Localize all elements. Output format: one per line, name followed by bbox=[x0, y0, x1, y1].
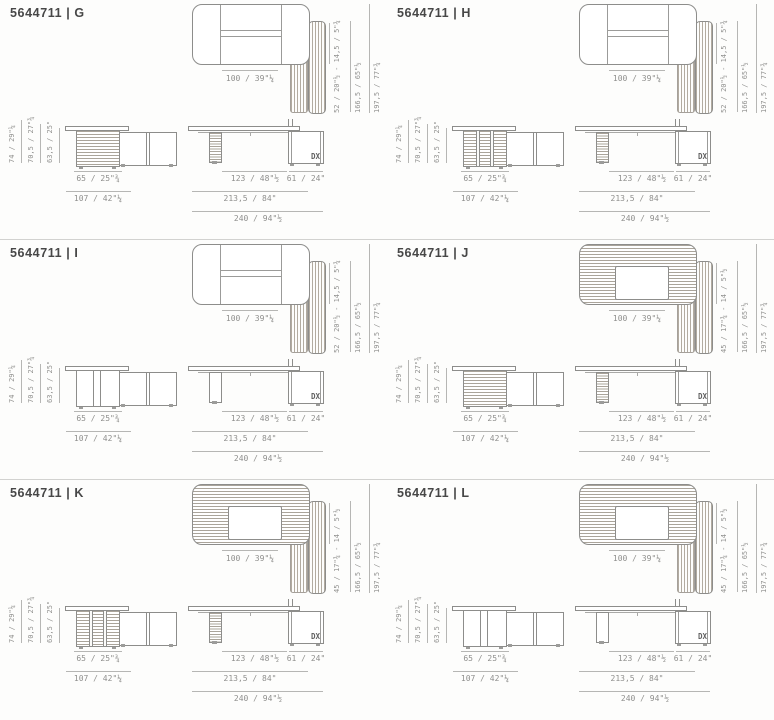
side-unit-foot bbox=[169, 644, 173, 647]
desk-top-slab bbox=[188, 606, 300, 611]
dimension-line bbox=[192, 691, 323, 692]
dx-side-label: DX bbox=[311, 152, 320, 161]
desk-leg-panel bbox=[596, 372, 609, 403]
dim-label-cabinet-height-2: 70,5 / 27"¾ bbox=[414, 357, 423, 403]
desktop-surface bbox=[192, 4, 310, 65]
dim-label-pedestal-width: 61 / 24" bbox=[663, 174, 723, 183]
dim-label-side-depth: 45 / 17"¾ - 14 / 5"½ bbox=[333, 509, 342, 593]
desk-leg-panel bbox=[596, 132, 609, 163]
pedestal-unit: DX bbox=[675, 131, 711, 164]
dimension-line bbox=[40, 364, 41, 403]
desktop-surface bbox=[579, 484, 697, 545]
dimension-line bbox=[716, 503, 717, 544]
center-support bbox=[250, 612, 251, 616]
side-unit-foot bbox=[121, 164, 125, 167]
return-panel-strip bbox=[290, 538, 308, 593]
dim-label-desk-width: 213,5 / 84" bbox=[587, 194, 687, 203]
dim-label-cabinet-width: 65 / 25"¾ bbox=[435, 174, 535, 183]
dimension-line bbox=[716, 263, 717, 304]
spec-sheet: 5644711 | G 100 / 39"¼ 52 / 20"½ - 14,5 … bbox=[0, 0, 774, 720]
pedestal-unit: DX bbox=[675, 371, 711, 404]
pedestal-inner-edge bbox=[678, 372, 679, 403]
dim-label-top-width: 100 / 39"¼ bbox=[582, 74, 692, 83]
spec-panel-k: 5644711 | K 100 / 39"¼ 45 / 17"¾ - 14 / … bbox=[0, 480, 387, 720]
dim-label-cabinet-width: 65 / 25"¾ bbox=[435, 654, 535, 663]
dimension-line bbox=[446, 128, 447, 163]
desktop-surface bbox=[579, 244, 697, 305]
dimension-line bbox=[737, 261, 738, 352]
dx-side-label: DX bbox=[698, 632, 707, 641]
pedestal-unit: DX bbox=[288, 611, 324, 644]
side-unit-foot bbox=[556, 644, 560, 647]
dimension-line bbox=[427, 124, 428, 163]
desk-leg-foot bbox=[599, 161, 604, 164]
side-unit-foot bbox=[556, 164, 560, 167]
dimension-line bbox=[676, 171, 710, 172]
dimension-line bbox=[579, 211, 710, 212]
dim-label-cabinet-height-2: 70,5 / 27"¾ bbox=[414, 117, 423, 163]
pedestal-inner-edge bbox=[320, 132, 321, 163]
dim-label-desk-total-width: 240 / 94"½ bbox=[595, 454, 695, 463]
dim-label-pedestal-width: 61 / 24" bbox=[663, 414, 723, 423]
desk-top-slab bbox=[188, 366, 300, 371]
dim-label-cabinet-height-3: 63,5 / 25" bbox=[433, 361, 442, 403]
dimension-line bbox=[579, 191, 695, 192]
dim-label-total-length: 197,5 / 77"¾ bbox=[760, 302, 769, 353]
cabinet-handle-groove bbox=[480, 611, 488, 646]
side-unit-foot bbox=[169, 164, 173, 167]
return-panel-strip bbox=[290, 298, 308, 353]
dim-label-cabinet-total-width: 107 / 42"¼ bbox=[435, 194, 535, 203]
pedestal-inner-edge bbox=[678, 612, 679, 643]
dim-label-top-width: 100 / 39"¼ bbox=[582, 314, 692, 323]
dim-label-desk-total-width: 240 / 94"½ bbox=[208, 694, 308, 703]
desk-leg-panel bbox=[209, 132, 222, 163]
center-support bbox=[637, 612, 638, 616]
dim-label-top-width: 100 / 39"¼ bbox=[195, 74, 305, 83]
dim-label-top-width: 100 / 39"¼ bbox=[195, 554, 305, 563]
back-panel-edge bbox=[288, 359, 293, 366]
dim-label-cabinet-height-1: 74 / 29"¼ bbox=[395, 365, 404, 403]
cabinet-handle-groove bbox=[93, 371, 101, 406]
back-panel-edge bbox=[288, 119, 293, 126]
desktop-surface bbox=[192, 484, 310, 545]
dimension-line bbox=[40, 604, 41, 643]
dim-label-top-width: 100 / 39"¼ bbox=[582, 554, 692, 563]
desk-top-slab bbox=[188, 126, 300, 131]
dim-label-top-width: 100 / 39"¼ bbox=[195, 314, 305, 323]
desktop-divider-line bbox=[281, 5, 282, 64]
dim-label-pedestal-width: 61 / 24" bbox=[276, 174, 336, 183]
cabinet-door-seam bbox=[476, 131, 480, 166]
dim-label-cabinet-height-3: 63,5 / 25" bbox=[46, 121, 55, 163]
panel-title: 5644711 | H bbox=[397, 6, 471, 20]
desktop-inset-pad bbox=[615, 266, 669, 300]
desktop-inset-pad bbox=[615, 506, 669, 540]
side-unit-foot bbox=[556, 404, 560, 407]
dim-label-pedestal-width: 61 / 24" bbox=[276, 414, 336, 423]
side-unit-foot bbox=[508, 404, 512, 407]
dim-label-desk-width: 213,5 / 84" bbox=[587, 434, 687, 443]
desktop-groove bbox=[607, 30, 668, 37]
dimension-line bbox=[676, 651, 710, 652]
dimension-line bbox=[461, 171, 509, 172]
spec-panel-g: 5644711 | G 100 / 39"¼ 52 / 20"½ - 14,5 … bbox=[0, 0, 387, 240]
pedestal-inner-edge bbox=[320, 612, 321, 643]
desk-leg-panel bbox=[209, 372, 222, 403]
cabinet-side-unit bbox=[118, 132, 177, 166]
dimension-line bbox=[369, 4, 370, 113]
cabinet-top-slab bbox=[65, 606, 129, 611]
dimension-line bbox=[609, 550, 665, 551]
dimension-line bbox=[408, 120, 409, 163]
side-panel-top-view bbox=[695, 261, 713, 354]
desk-leg-panel bbox=[209, 612, 222, 643]
dimension-line bbox=[350, 21, 351, 112]
pedestal-inner-edge bbox=[291, 612, 292, 643]
dim-label-cabinet-width: 65 / 25"¾ bbox=[435, 414, 535, 423]
dim-label-side-length: 166,5 / 65"½ bbox=[741, 62, 750, 113]
cabinet-side-unit bbox=[505, 612, 564, 646]
dimension-line bbox=[446, 368, 447, 403]
dimension-line bbox=[427, 364, 428, 403]
spec-panel-i: 5644711 | I 100 / 39"¼ 52 / 20"½ - 14,5 … bbox=[0, 240, 387, 480]
dimension-line bbox=[737, 501, 738, 592]
panel-title: 5644711 | L bbox=[397, 486, 470, 500]
desk-leg-foot bbox=[212, 641, 217, 644]
dim-label-side-length: 166,5 / 65"½ bbox=[741, 542, 750, 593]
dim-label-side-depth: 52 / 20"½ - 14,5 / 5"¾ bbox=[720, 20, 729, 113]
pedestal-inner-edge bbox=[291, 132, 292, 163]
dimension-line bbox=[59, 128, 60, 163]
dimension-line bbox=[369, 244, 370, 353]
dimension-line bbox=[289, 651, 323, 652]
cabinet-top-slab bbox=[65, 126, 129, 131]
dim-label-desk-total-width: 240 / 94"½ bbox=[208, 454, 308, 463]
return-panel-strip bbox=[290, 58, 308, 113]
side-panel-top-view bbox=[308, 21, 326, 114]
dimension-line bbox=[74, 171, 122, 172]
dimension-line bbox=[453, 191, 518, 192]
dim-label-cabinet-height-2: 70,5 / 27"¾ bbox=[27, 597, 36, 643]
panel-grid: 5644711 | G 100 / 39"¼ 52 / 20"½ - 14,5 … bbox=[0, 0, 774, 720]
dimension-line bbox=[427, 604, 428, 643]
dim-label-desk-total-width: 240 / 94"½ bbox=[595, 694, 695, 703]
dimension-line bbox=[350, 261, 351, 352]
side-unit-foot bbox=[121, 404, 125, 407]
dimension-line bbox=[21, 120, 22, 163]
cabinet-drawer-unit bbox=[76, 370, 120, 407]
side-unit-foot bbox=[121, 644, 125, 647]
desk-leg-foot bbox=[212, 401, 217, 404]
center-support bbox=[250, 372, 251, 376]
dimension-line bbox=[21, 360, 22, 403]
side-panel-top-view bbox=[695, 501, 713, 594]
cabinet-drawer-unit bbox=[76, 130, 120, 167]
dimension-line bbox=[329, 23, 330, 64]
desk-top-slab bbox=[575, 606, 687, 611]
cabinet-drawer-unit bbox=[463, 370, 507, 407]
desk-leg-foot bbox=[599, 401, 604, 404]
dimension-line bbox=[446, 608, 447, 643]
dimension-line bbox=[609, 310, 665, 311]
dim-label-total-length: 197,5 / 77"¾ bbox=[373, 302, 382, 353]
desk-top-slab bbox=[575, 366, 687, 371]
desktop-groove bbox=[220, 30, 281, 37]
pedestal-inner-edge bbox=[707, 372, 708, 403]
dimension-line bbox=[289, 411, 323, 412]
panel-title: 5644711 | I bbox=[10, 246, 79, 260]
cabinet-side-unit bbox=[118, 372, 177, 406]
dim-label-cabinet-height-1: 74 / 29"¼ bbox=[8, 605, 17, 643]
dimension-line bbox=[222, 550, 278, 551]
side-unit-door-seam bbox=[146, 133, 150, 165]
dim-label-cabinet-total-width: 107 / 42"¼ bbox=[48, 194, 148, 203]
dx-side-label: DX bbox=[311, 632, 320, 641]
spec-panel-h: 5644711 | H 100 / 39"¼ 52 / 20"½ - 14,5 … bbox=[387, 0, 774, 240]
dimension-line bbox=[408, 600, 409, 643]
dimension-line bbox=[609, 70, 665, 71]
dimension-line bbox=[350, 501, 351, 592]
dimension-line bbox=[453, 431, 518, 432]
side-panel-top-view bbox=[695, 21, 713, 114]
pedestal-inner-edge bbox=[678, 132, 679, 163]
pedestal-inner-edge bbox=[320, 372, 321, 403]
dimension-line bbox=[222, 411, 287, 412]
dimension-line bbox=[222, 651, 287, 652]
dx-side-label: DX bbox=[311, 392, 320, 401]
dimension-line bbox=[222, 310, 278, 311]
dim-label-cabinet-width: 65 / 25"¾ bbox=[48, 654, 148, 663]
desk-top-slab bbox=[575, 126, 687, 131]
dimension-line bbox=[59, 368, 60, 403]
dim-label-desk-width: 213,5 / 84" bbox=[200, 434, 300, 443]
back-panel-edge bbox=[288, 599, 293, 606]
dim-label-side-depth: 52 / 20"½ - 14,5 / 5"¾ bbox=[333, 20, 342, 113]
cabinet-top-slab bbox=[452, 366, 516, 371]
dim-label-side-length: 166,5 / 65"½ bbox=[741, 302, 750, 353]
dimension-line bbox=[756, 4, 757, 113]
desktop-divider-line bbox=[668, 5, 669, 64]
dim-label-cabinet-height-1: 74 / 29"¼ bbox=[8, 125, 17, 163]
dim-label-cabinet-height-2: 70,5 / 27"¾ bbox=[27, 117, 36, 163]
dimension-line bbox=[59, 608, 60, 643]
dim-label-cabinet-height-3: 63,5 / 25" bbox=[46, 361, 55, 403]
dim-label-total-length: 197,5 / 77"¾ bbox=[760, 62, 769, 113]
dimension-line bbox=[579, 451, 710, 452]
back-panel-edge bbox=[675, 599, 680, 606]
side-unit-door-seam bbox=[533, 133, 537, 165]
dimension-line bbox=[369, 484, 370, 593]
dimension-line bbox=[192, 671, 308, 672]
dimension-line bbox=[329, 263, 330, 304]
pedestal-inner-edge bbox=[291, 372, 292, 403]
dim-label-side-depth: 52 / 20"½ - 14,5 / 5"¾ bbox=[333, 260, 342, 353]
side-unit-door-seam bbox=[146, 373, 150, 405]
cabinet-drawer-unit bbox=[76, 610, 120, 647]
dim-label-cabinet-height-1: 74 / 29"¼ bbox=[8, 365, 17, 403]
dim-label-desk-total-width: 240 / 94"½ bbox=[595, 214, 695, 223]
dim-label-cabinet-total-width: 107 / 42"¼ bbox=[48, 674, 148, 683]
dim-label-side-depth: 45 / 17"¾ - 14 / 5"½ bbox=[720, 269, 729, 353]
dimension-line bbox=[289, 171, 323, 172]
panel-title: 5644711 | G bbox=[10, 6, 85, 20]
dim-label-cabinet-height-2: 70,5 / 27"¾ bbox=[27, 357, 36, 403]
pedestal-unit: DX bbox=[288, 131, 324, 164]
dimension-line bbox=[66, 671, 131, 672]
back-panel-edge bbox=[675, 119, 680, 126]
dim-label-cabinet-height-1: 74 / 29"¼ bbox=[395, 605, 404, 643]
cabinet-drawer-unit bbox=[463, 130, 507, 167]
dim-label-cabinet-height-3: 63,5 / 25" bbox=[433, 601, 442, 643]
desktop-divider-line bbox=[281, 245, 282, 304]
dimension-line bbox=[192, 211, 323, 212]
pedestal-inner-edge bbox=[707, 132, 708, 163]
dim-label-total-length: 197,5 / 77"¾ bbox=[373, 62, 382, 113]
dimension-line bbox=[192, 431, 308, 432]
cabinet-top-slab bbox=[452, 126, 516, 131]
center-support bbox=[637, 132, 638, 136]
dim-label-side-length: 166,5 / 65"½ bbox=[354, 542, 363, 593]
dimension-line bbox=[579, 671, 695, 672]
dim-label-desk-total-width: 240 / 94"½ bbox=[208, 214, 308, 223]
side-unit-foot bbox=[508, 164, 512, 167]
side-panel-top-view bbox=[308, 261, 326, 354]
dim-label-cabinet-total-width: 107 / 42"¼ bbox=[48, 434, 148, 443]
pedestal-inner-edge bbox=[707, 612, 708, 643]
dimension-line bbox=[716, 23, 717, 64]
cabinet-top-slab bbox=[65, 366, 129, 371]
side-panel-top-view bbox=[308, 501, 326, 594]
dimension-line bbox=[609, 171, 674, 172]
desk-leg-panel bbox=[596, 612, 609, 643]
return-panel-strip bbox=[677, 298, 695, 353]
dimension-line bbox=[579, 431, 695, 432]
desktop-groove bbox=[220, 270, 281, 277]
dimension-line bbox=[222, 171, 287, 172]
dimension-line bbox=[66, 431, 131, 432]
back-panel-edge bbox=[675, 359, 680, 366]
dim-label-pedestal-width: 61 / 24" bbox=[276, 654, 336, 663]
dim-label-side-length: 166,5 / 65"½ bbox=[354, 62, 363, 113]
dimension-line bbox=[453, 671, 518, 672]
dim-label-desk-width: 213,5 / 84" bbox=[587, 674, 687, 683]
dim-label-pedestal-width: 61 / 24" bbox=[663, 654, 723, 663]
dx-side-label: DX bbox=[698, 392, 707, 401]
desk-leg-foot bbox=[212, 161, 217, 164]
dimension-line bbox=[74, 651, 122, 652]
dimension-line bbox=[329, 503, 330, 544]
pedestal-unit: DX bbox=[288, 371, 324, 404]
dimension-line bbox=[756, 484, 757, 593]
dimension-line bbox=[676, 411, 710, 412]
dimension-line bbox=[461, 651, 509, 652]
cabinet-door-seam bbox=[490, 131, 494, 166]
return-panel-strip bbox=[677, 538, 695, 593]
dimension-line bbox=[461, 411, 509, 412]
center-support bbox=[250, 132, 251, 136]
dim-label-desk-width: 213,5 / 84" bbox=[200, 674, 300, 683]
dimension-line bbox=[192, 451, 323, 452]
pedestal-unit: DX bbox=[675, 611, 711, 644]
dim-label-cabinet-height-2: 70,5 / 27"¾ bbox=[414, 597, 423, 643]
dim-label-cabinet-height-3: 63,5 / 25" bbox=[46, 601, 55, 643]
cabinet-side-unit bbox=[505, 372, 564, 406]
dimension-line bbox=[609, 411, 674, 412]
return-panel-strip bbox=[677, 58, 695, 113]
cabinet-drawer-unit bbox=[463, 610, 507, 647]
desk-leg-foot bbox=[599, 641, 604, 644]
side-unit-foot bbox=[169, 404, 173, 407]
dx-side-label: DX bbox=[698, 152, 707, 161]
dimension-line bbox=[192, 191, 308, 192]
cabinet-side-unit bbox=[505, 132, 564, 166]
spec-panel-j: 5644711 | J 100 / 39"¼ 45 / 17"¾ - 14 / … bbox=[387, 240, 774, 480]
spec-panel-l: 5644711 | L 100 / 39"¼ 45 / 17"¾ - 14 / … bbox=[387, 480, 774, 720]
dimension-line bbox=[609, 651, 674, 652]
side-unit-door-seam bbox=[533, 373, 537, 405]
desktop-inset-pad bbox=[228, 506, 282, 540]
dim-label-side-depth: 45 / 17"¾ - 14 / 5"½ bbox=[720, 509, 729, 593]
dimension-line bbox=[40, 124, 41, 163]
dim-label-desk-width: 213,5 / 84" bbox=[200, 194, 300, 203]
dimension-line bbox=[579, 691, 710, 692]
dimension-line bbox=[66, 191, 131, 192]
dimension-line bbox=[222, 70, 278, 71]
dim-label-cabinet-width: 65 / 25"¾ bbox=[48, 414, 148, 423]
cabinet-top-slab bbox=[452, 606, 516, 611]
dim-label-cabinet-height-1: 74 / 29"¼ bbox=[395, 125, 404, 163]
panel-title: 5644711 | K bbox=[10, 486, 84, 500]
dim-label-cabinet-height-3: 63,5 / 25" bbox=[433, 121, 442, 163]
dim-label-total-length: 197,5 / 77"¾ bbox=[373, 542, 382, 593]
dim-label-cabinet-width: 65 / 25"¾ bbox=[48, 174, 148, 183]
panel-title: 5644711 | J bbox=[397, 246, 469, 260]
dim-label-side-length: 166,5 / 65"½ bbox=[354, 302, 363, 353]
desktop-surface bbox=[192, 244, 310, 305]
dimension-line bbox=[408, 360, 409, 403]
side-unit-door-seam bbox=[146, 613, 150, 645]
dimension-line bbox=[21, 600, 22, 643]
cabinet-side-unit bbox=[118, 612, 177, 646]
dim-label-total-length: 197,5 / 77"¾ bbox=[760, 542, 769, 593]
cabinet-door-seam bbox=[89, 611, 93, 646]
dimension-line bbox=[756, 244, 757, 353]
dimension-line bbox=[74, 411, 122, 412]
dim-label-cabinet-total-width: 107 / 42"¼ bbox=[435, 434, 535, 443]
cabinet-door-seam bbox=[103, 611, 107, 646]
dimension-line bbox=[737, 21, 738, 112]
dim-label-cabinet-total-width: 107 / 42"¼ bbox=[435, 674, 535, 683]
center-support bbox=[637, 372, 638, 376]
desktop-surface bbox=[579, 4, 697, 65]
side-unit-door-seam bbox=[533, 613, 537, 645]
side-unit-foot bbox=[508, 644, 512, 647]
